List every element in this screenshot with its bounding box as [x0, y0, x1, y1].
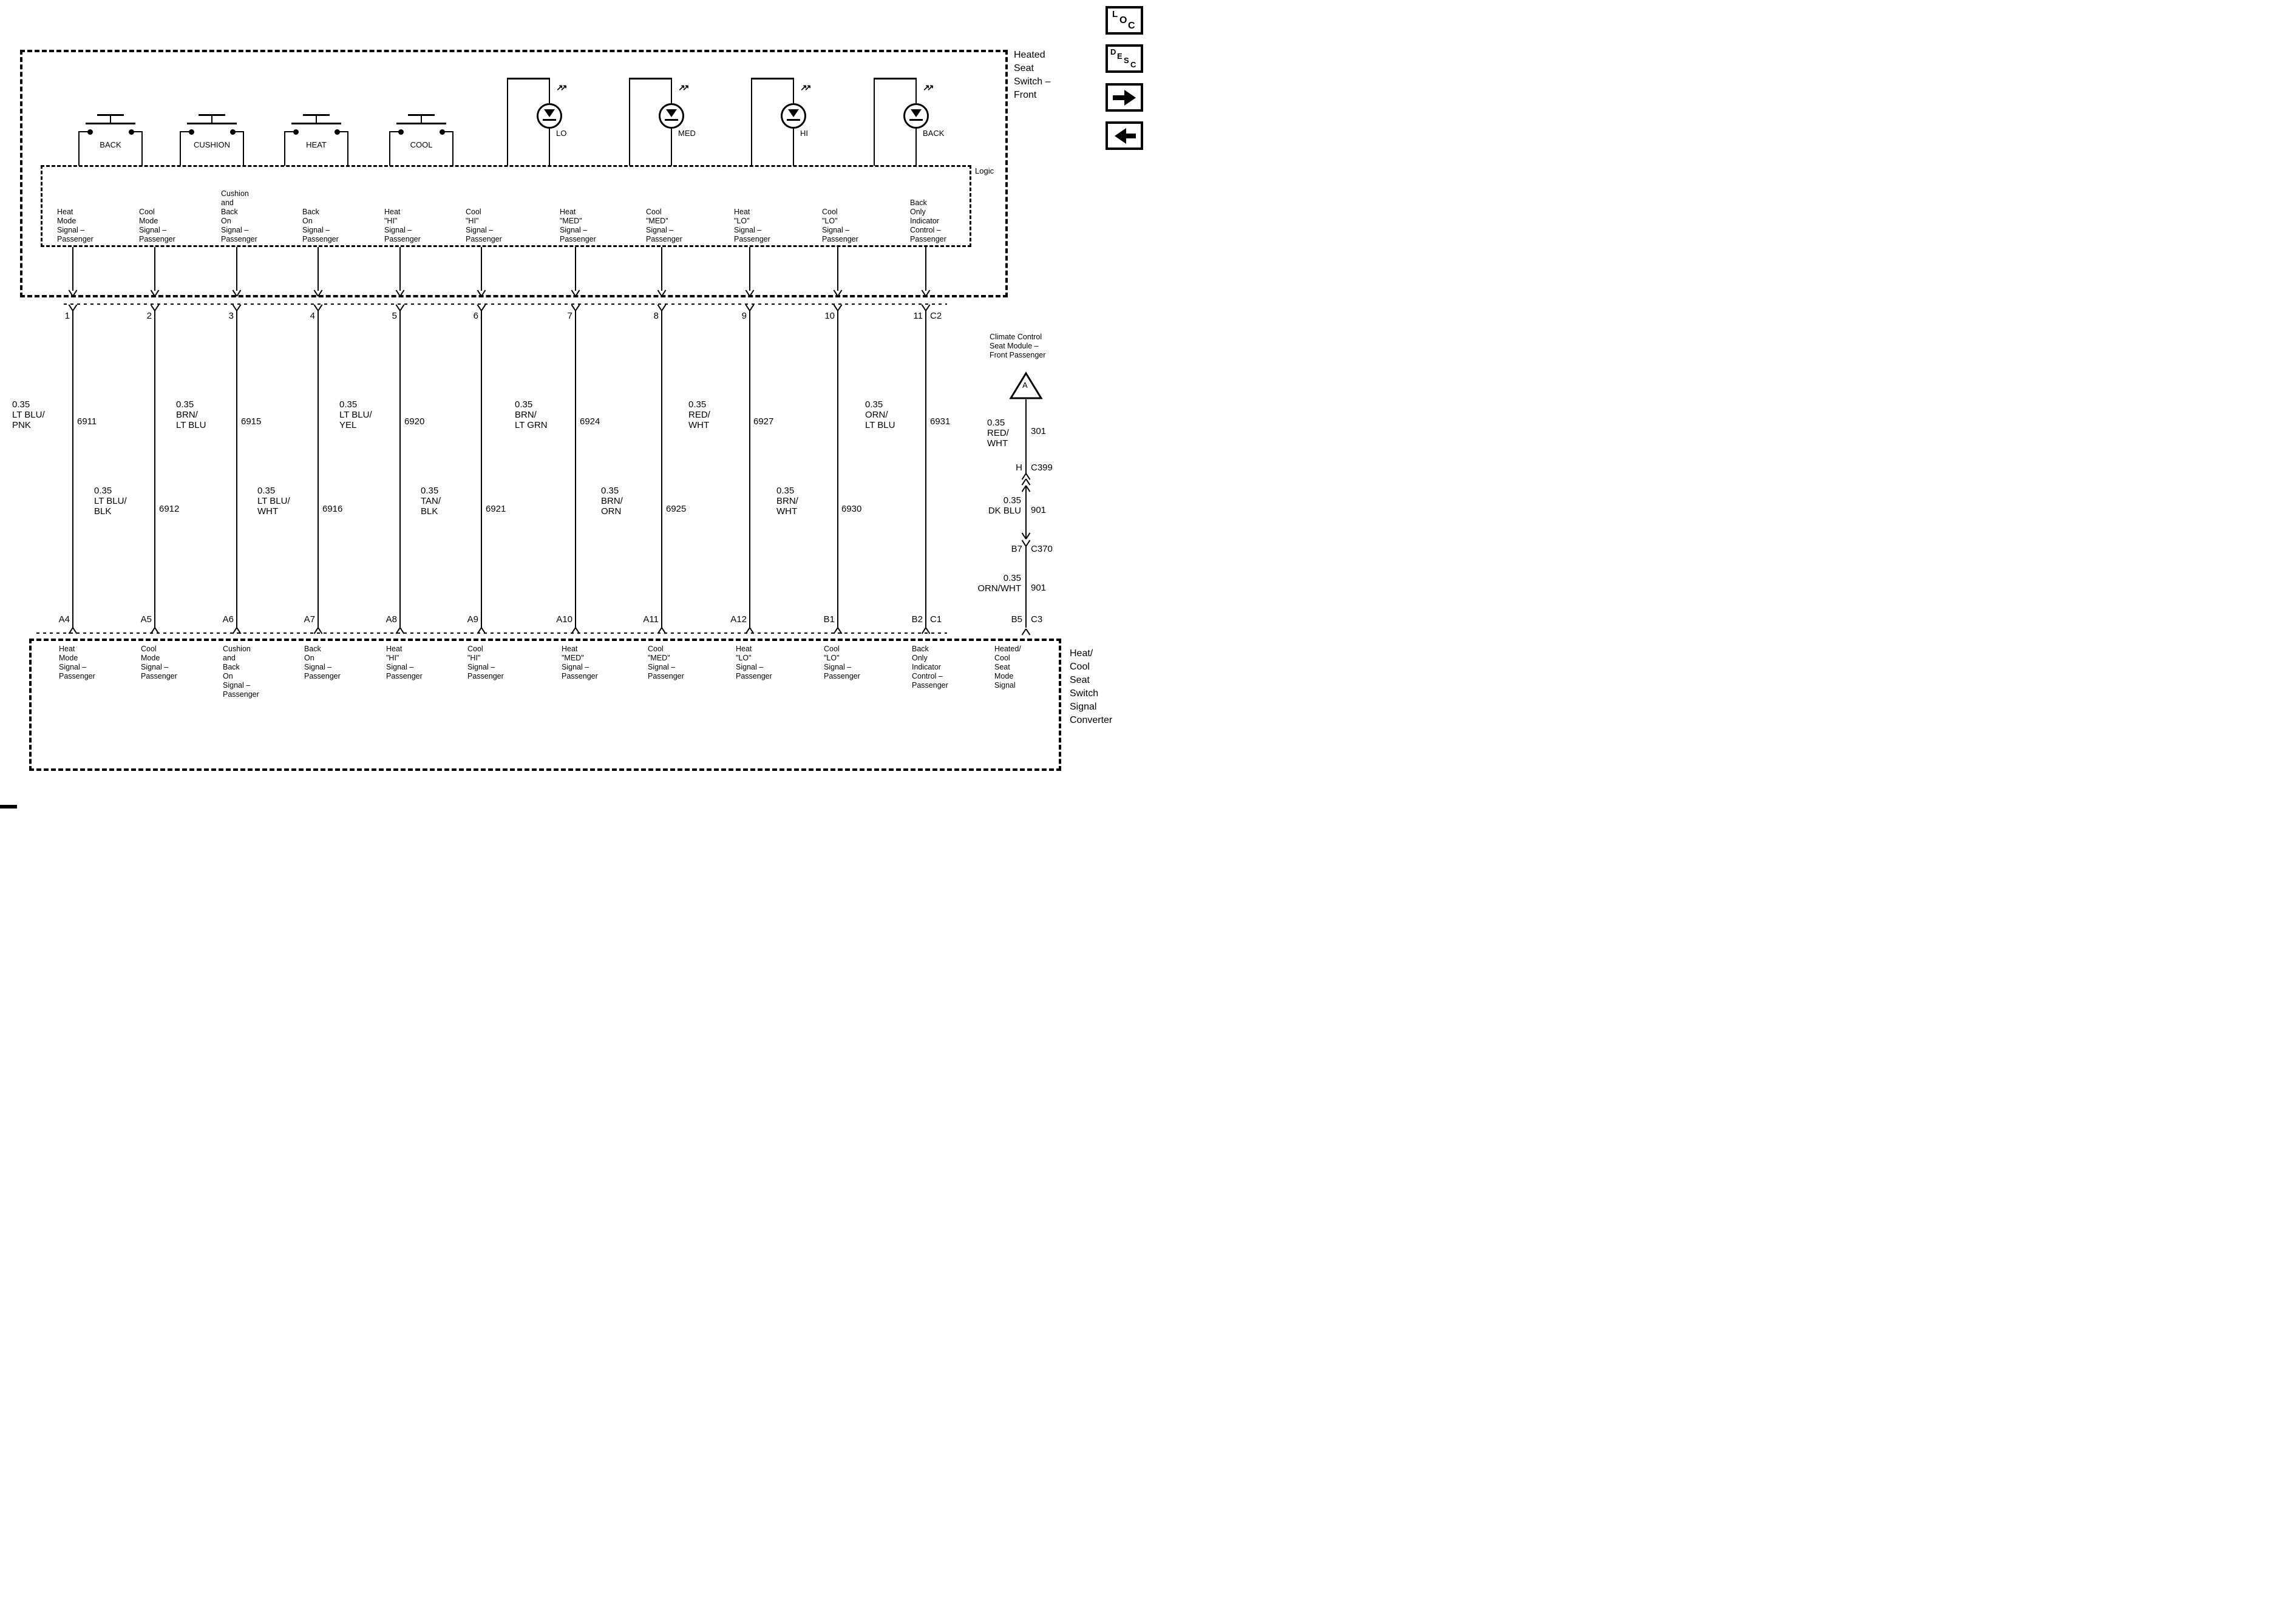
wire-circuit-label: 6925	[666, 504, 724, 514]
connector-pin-icon	[746, 628, 754, 634]
led-loop-top	[751, 78, 794, 80]
led-rays-icon: ↗↗	[800, 83, 808, 93]
converter-signal-3: Cushion and Back On Signal – Passenger	[223, 645, 259, 699]
pin-a7: A7	[288, 614, 315, 625]
pin-b5: B5	[996, 614, 1022, 625]
logic-signal-11: Back Only Indicator Control – Passenger	[910, 198, 946, 244]
wire-6927	[749, 310, 750, 628]
wire-circuit-label: 901	[1031, 505, 1089, 515]
connector-pin-icon	[834, 628, 842, 634]
switch-lead	[79, 131, 89, 132]
logic-signal-6: Cool "HI" Signal – Passenger	[466, 208, 502, 244]
led-rays-icon: ↗↗	[678, 83, 686, 93]
down-arrow-icon	[746, 290, 754, 296]
next-button[interactable]	[1106, 83, 1143, 112]
desc-button[interactable]: D E S C	[1106, 44, 1143, 73]
switch-back-label: BACK	[77, 140, 144, 149]
wire-color-label: 0.35 ORN/ LT BLU	[865, 399, 923, 430]
led-icon	[903, 103, 929, 129]
converter-signal-4: Back On Signal – Passenger	[304, 645, 341, 681]
wire-circuit-label: 901	[1031, 583, 1089, 593]
back-button[interactable]	[1106, 121, 1143, 150]
wire-6921	[481, 310, 482, 628]
wire-circuit-label: 6912	[159, 504, 217, 514]
connector-a-label: A	[1022, 381, 1028, 390]
logic-drop	[72, 247, 73, 291]
wire-circuit-label: 6911	[77, 416, 135, 427]
down-arrow-icon	[834, 290, 842, 296]
wire-circuit-label: 301	[1031, 426, 1089, 436]
pin-a10: A10	[546, 614, 572, 625]
connector-c2-label: C2	[930, 311, 957, 321]
led-rays-icon: ↗↗	[923, 83, 931, 93]
wire-circuit-label: 6927	[753, 416, 811, 427]
led-lo-label: LO	[556, 129, 566, 138]
converter-signal-8: Cool "MED" Signal – Passenger	[648, 645, 684, 681]
wire-6915	[236, 310, 237, 628]
pin-7: 7	[546, 311, 572, 321]
logic-signal-4: Back On Signal – Passenger	[302, 208, 339, 244]
pin-10: 10	[808, 311, 835, 321]
pin-a4: A4	[43, 614, 70, 625]
switch-heat-label: HEAT	[283, 140, 350, 149]
pin-b7: B7	[996, 544, 1022, 554]
pin-a9: A9	[452, 614, 478, 625]
down-arrow-icon	[571, 290, 580, 296]
led-rays-icon: ↗↗	[556, 83, 564, 93]
led-loop-leg	[629, 78, 630, 166]
logic-signal-9: Heat "LO" Signal – Passenger	[734, 208, 770, 244]
logic-drop	[661, 247, 662, 291]
switch-lead	[180, 131, 190, 132]
converter-signal-1: Heat Mode Signal – Passenger	[59, 645, 95, 681]
loc-button[interactable]: L O C	[1106, 6, 1143, 35]
connector-pin-icon	[396, 628, 404, 634]
connector-chevron-icon	[1022, 479, 1030, 486]
heated-seat-switch-title: Heated Seat Switch – Front	[1014, 49, 1050, 102]
led-loop-top	[507, 78, 550, 80]
down-arrow-icon	[69, 290, 77, 296]
wire-circuit-label: 6920	[404, 416, 462, 427]
logic-drop	[236, 247, 237, 291]
wire-color-label: 0.35 ORN/WHT	[935, 573, 1021, 594]
down-arrow-icon	[151, 290, 159, 296]
pin-9: 9	[720, 311, 747, 321]
led-loop-top	[629, 78, 672, 80]
connector-pin-icon	[151, 628, 159, 634]
converter-signal-7: Heat "MED" Signal – Passenger	[562, 645, 598, 681]
converter-signal-9: Heat "LO" Signal – Passenger	[736, 645, 772, 681]
converter-signal-6: Cool "HI" Signal – Passenger	[467, 645, 504, 681]
converter-signal-mode: Heated/ Cool Seat Mode Signal	[994, 645, 1021, 690]
wiring-diagram: L O C D E S C Heated Seat Switch – Front…	[0, 0, 1148, 808]
wire-901-dkblu	[1025, 486, 1027, 539]
pin-8: 8	[632, 311, 659, 321]
wire-circuit-label: 6915	[241, 416, 299, 427]
right-arrow-icon	[1113, 95, 1125, 100]
wire-6930	[837, 310, 838, 628]
logic-drop	[575, 247, 576, 291]
pin-4: 4	[288, 311, 315, 321]
switch-actuator-bar	[291, 123, 341, 124]
connector-c1-line	[36, 632, 947, 634]
switch-cushion-label: CUSHION	[178, 140, 245, 149]
connector-c399-label: C399	[1031, 463, 1065, 473]
wire-color-label: 0.35 BRN/ LT GRN	[515, 399, 572, 430]
connector-pin-icon	[657, 628, 666, 634]
wire-color-label: 0.35 LT BLU/ YEL	[339, 399, 397, 430]
pin-b2: B2	[896, 614, 923, 625]
wire-6911	[72, 310, 73, 628]
wire-color-label: 0.35 BRN/ ORN	[601, 486, 659, 517]
wire-6912	[154, 310, 155, 628]
logic-drop	[749, 247, 750, 291]
wire-color-label: 0.35 RED/ WHT	[688, 399, 746, 430]
down-arrow-icon	[922, 290, 930, 296]
wire-6931	[925, 310, 926, 628]
page-edge-mark	[0, 805, 17, 808]
switch-actuator-bar	[396, 123, 446, 124]
pin-5: 5	[370, 311, 397, 321]
led-med-label: MED	[678, 129, 696, 138]
switch-lead	[390, 131, 399, 132]
logic-signal-10: Cool "LO" Signal – Passenger	[822, 208, 858, 244]
led-icon	[781, 103, 806, 129]
logic-drop	[318, 247, 319, 291]
connector-pin-icon	[477, 628, 486, 634]
led-back-label: BACK	[923, 129, 944, 138]
connector-pin-icon	[233, 628, 241, 634]
loc-letter: L	[1112, 9, 1118, 19]
converter-signal-5: Heat "HI" Signal – Passenger	[386, 645, 423, 681]
logic-drop	[399, 247, 401, 291]
down-arrow-icon	[477, 290, 486, 296]
wire-color-label: 0.35 LT BLU/ BLK	[94, 486, 152, 517]
down-arrow-icon	[657, 290, 666, 296]
switch-lead	[285, 131, 294, 132]
connector-pin-icon	[69, 628, 77, 634]
logic-drop	[837, 247, 838, 291]
up-arrow-icon	[1022, 486, 1030, 492]
wire-color-label: 0.35 LT BLU/ PNK	[12, 399, 70, 430]
wire-circuit-label: 6930	[841, 504, 899, 514]
wire-circuit-label: 6916	[322, 504, 380, 514]
wire-circuit-label: 6931	[930, 416, 988, 427]
led-loop-leg	[874, 78, 875, 166]
pin-b1: B1	[808, 614, 835, 625]
wire-6916	[318, 310, 319, 628]
pin-a5: A5	[125, 614, 152, 625]
connector-c3-label: C3	[1031, 614, 1058, 625]
logic-signal-8: Cool "MED" Signal – Passenger	[646, 208, 682, 244]
switch-cool-label: COOL	[388, 140, 455, 149]
desc-letter: E	[1117, 52, 1123, 61]
climate-module-label: Climate Control Seat Module – Front Pass…	[990, 333, 1045, 360]
loc-letter: C	[1128, 21, 1135, 32]
connector-pin-icon	[314, 628, 322, 634]
logic-signal-1: Heat Mode Signal – Passenger	[57, 208, 93, 244]
down-arrow-icon	[1022, 532, 1030, 539]
wire-color-label: 0.35 BRN/ WHT	[776, 486, 834, 517]
left-arrow-icon	[1113, 128, 1126, 144]
connector-c2-line	[64, 303, 947, 305]
converter-signal-11: Back Only Indicator Control – Passenger	[912, 645, 948, 690]
pin-11: 11	[896, 311, 923, 321]
wire-6924	[575, 310, 576, 628]
led-loop-leg	[507, 78, 508, 166]
logic-signal-5: Heat "HI" Signal – Passenger	[384, 208, 421, 244]
pin-2: 2	[125, 311, 152, 321]
logic-drop	[925, 247, 926, 291]
signal-converter-title: Heat/ Cool Seat Switch Signal Converter	[1070, 647, 1112, 727]
pin-a11: A11	[632, 614, 659, 625]
led-loop-leg	[751, 78, 752, 166]
pin-3: 3	[207, 311, 234, 321]
wire-color-label: 0.35 DK BLU	[947, 495, 1021, 516]
signal-converter-box	[29, 639, 1061, 771]
connector-pin-icon	[922, 628, 930, 634]
logic-label: Logic	[975, 166, 994, 175]
down-arrow-icon	[396, 290, 404, 296]
wire-color-label: 0.35 LT BLU/ WHT	[257, 486, 315, 517]
pin-h: H	[996, 463, 1022, 473]
converter-signal-2: Cool Mode Signal – Passenger	[141, 645, 177, 681]
wire-6920	[399, 310, 401, 628]
connector-pin-icon	[1022, 629, 1030, 636]
connector-c1-label: C1	[930, 614, 957, 625]
led-loop-top	[874, 78, 917, 80]
switch-actuator-bar	[86, 123, 135, 124]
pin-a8: A8	[370, 614, 397, 625]
right-arrow-icon	[1124, 90, 1138, 106]
pin-a6: A6	[207, 614, 234, 625]
logic-signal-3: Cushion and Back On Signal – Passenger	[221, 189, 257, 244]
desc-letter: S	[1124, 56, 1129, 65]
pin-1: 1	[43, 311, 70, 321]
logic-signal-7: Heat "MED" Signal – Passenger	[560, 208, 596, 244]
led-icon	[659, 103, 684, 129]
desc-letter: C	[1130, 60, 1136, 69]
connector-pin-icon	[571, 628, 580, 634]
wire-circuit-label: 6924	[580, 416, 637, 427]
wire-color-label: 0.35 TAN/ BLK	[421, 486, 478, 517]
pin-6: 6	[452, 311, 478, 321]
switch-actuator-bar	[187, 123, 237, 124]
down-arrow-icon	[314, 290, 322, 296]
wire-circuit-label: 6921	[486, 504, 543, 514]
led-hi-label: HI	[800, 129, 808, 138]
wire-901-ornwht	[1025, 546, 1027, 628]
led-icon	[537, 103, 562, 129]
logic-drop	[154, 247, 155, 291]
converter-signal-10: Cool "LO" Signal – Passenger	[824, 645, 860, 681]
wire-6925	[661, 310, 662, 628]
connector-c370-label: C370	[1031, 544, 1065, 554]
pin-a12: A12	[720, 614, 747, 625]
down-arrow-icon	[233, 290, 241, 296]
logic-signal-2: Cool Mode Signal – Passenger	[139, 208, 175, 244]
desc-letter: D	[1110, 47, 1116, 56]
loc-letter: O	[1119, 15, 1127, 26]
logic-drop	[481, 247, 482, 291]
wire-color-label: 0.35 BRN/ LT BLU	[176, 399, 234, 430]
